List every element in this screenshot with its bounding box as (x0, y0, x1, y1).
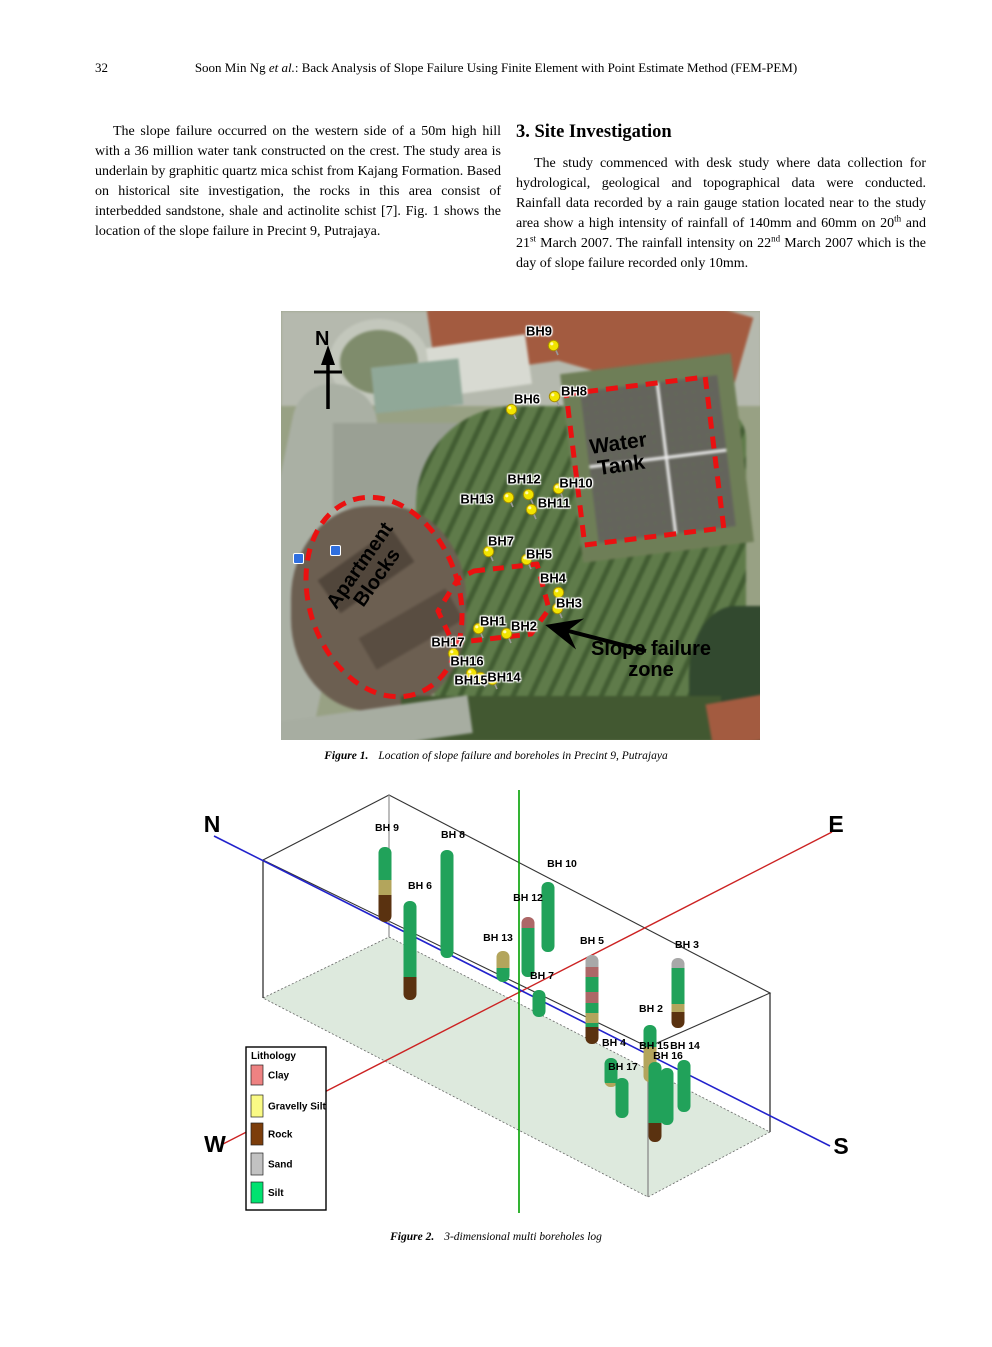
page-header: 32 Soon Min Ng et al.: Back Analysis of … (0, 60, 992, 76)
lithology-segment (404, 901, 417, 977)
lithology-segment (533, 990, 546, 1017)
borehole-label: BH 9 (375, 822, 399, 834)
figure2-caption-label: Figure 2. (390, 1231, 434, 1243)
lithology-segment (616, 1078, 629, 1118)
borehole-pin-icon (502, 491, 517, 513)
legend-label: Sand (268, 1160, 292, 1171)
legend-swatch (251, 1182, 263, 1203)
lithology-segment (672, 1012, 685, 1028)
legend-swatch (251, 1095, 263, 1117)
west-axis-label: W (204, 1131, 226, 1157)
borehole-column (649, 1062, 662, 1142)
borehole-label: BH 16 (653, 1050, 683, 1062)
borehole-label: BH 4 (602, 1037, 626, 1049)
borehole-label: BH 12 (513, 892, 543, 904)
lithology-segment (379, 880, 392, 895)
legend-swatch (251, 1123, 263, 1145)
borehole-pin-label: BH9 (526, 324, 552, 339)
borehole-pin-label: BH16 (450, 654, 483, 669)
borehole-column (404, 901, 417, 1000)
legend-label: Clay (268, 1071, 290, 1082)
borehole-pin-label: BH14 (487, 670, 520, 685)
borehole-pin-label: BH2 (511, 619, 537, 634)
lithology-segment (522, 917, 535, 928)
borehole-pin-label: BH6 (514, 392, 540, 407)
figure1-caption-label: Figure 1. (324, 750, 368, 762)
borehole-column (441, 850, 454, 958)
borehole-column (379, 847, 392, 922)
borehole-pin-label: BH8 (561, 384, 587, 399)
borehole-pin-label: BH3 (556, 596, 582, 611)
lithology-segment (586, 1013, 599, 1023)
borehole-pin-icon (547, 339, 562, 361)
north-axis-label: N (204, 811, 221, 837)
figure2-borehole-log: BH 9BH 8BH 6BH 10BH 12BH 13BH 7BH 5BH 3B… (190, 788, 890, 1220)
borehole-label: BH 6 (408, 880, 432, 892)
borehole-pin-label: BH5 (526, 547, 552, 562)
borehole-label: BH 13 (483, 932, 513, 944)
lithology-segment (661, 1068, 674, 1125)
etal: et al. (269, 60, 295, 75)
lithology-segment (497, 951, 510, 968)
borehole-column (533, 990, 546, 1017)
borehole-pin-label: BH10 (559, 476, 592, 491)
borehole-label: BH 2 (639, 1003, 663, 1015)
lithology-segment (441, 850, 454, 958)
lithology-segment (586, 1003, 599, 1013)
borehole-column (616, 1078, 629, 1118)
borehole-pin-label: BH11 (538, 496, 571, 511)
lithology-segment (586, 1027, 599, 1044)
lithology-segment (404, 977, 417, 1000)
site-paragraph: The study commenced with desk study wher… (516, 154, 926, 274)
borehole-column (661, 1068, 674, 1125)
section-heading: 3. Site Investigation (516, 122, 926, 142)
lithology-segment (379, 895, 392, 922)
borehole-label: BH 7 (530, 970, 554, 982)
lithology-segment (497, 968, 510, 982)
right-column: 3. Site Investigation The study commence… (516, 122, 926, 274)
lithology-segment (586, 967, 599, 977)
lithology-segment (672, 1004, 685, 1012)
lithology-segment (586, 955, 599, 967)
borehole-column (542, 882, 555, 952)
borehole-pin-label: BH7 (488, 534, 514, 549)
borehole-pin-label: BH4 (540, 571, 566, 586)
borehole-pin-label: BH15 (454, 673, 487, 688)
figure1-satellite-map: BH9BH8BH6BH12BH10BH13BH11BH7BH5BH4BH3BH1… (281, 311, 760, 740)
borehole-label: BH 5 (580, 935, 604, 947)
legend-swatch (251, 1153, 263, 1175)
borehole-pin-label: BH12 (507, 472, 540, 487)
borehole-label: BH 8 (441, 829, 465, 841)
borehole-pin-label: BH13 (460, 492, 493, 507)
lithology-segment (678, 1060, 691, 1112)
lithology-segment (586, 977, 599, 992)
borehole-column (522, 917, 535, 977)
north-label: N (315, 329, 329, 350)
legend-label: Silt (268, 1188, 284, 1199)
lithology-segment (379, 847, 392, 880)
borehole-column (497, 951, 510, 982)
borehole-label: BH 17 (608, 1061, 638, 1073)
figure2-caption: Figure 2.3-dimensional multi boreholes l… (0, 1231, 992, 1243)
page-number: 32 (95, 60, 108, 76)
borehole-column (678, 1060, 691, 1112)
water-tank-label: Water Tank (588, 429, 651, 481)
legend-swatch (251, 1065, 263, 1085)
box-floor (263, 937, 770, 1197)
left-column: The slope failure occurred on the wester… (95, 122, 501, 242)
lithology-segment (672, 968, 685, 1004)
lithology-segment (672, 958, 685, 968)
lithology-segment (649, 1123, 662, 1142)
intro-paragraph: The slope failure occurred on the wester… (95, 122, 501, 242)
legend-title: Lithology (251, 1051, 296, 1062)
borehole-label: BH 3 (675, 939, 699, 951)
slope-failure-zone-label: Slope failure zone (576, 639, 726, 681)
borehole-pin-label: BH17 (431, 635, 464, 650)
lithology-segment (649, 1062, 662, 1123)
borehole-column (672, 958, 685, 1028)
figure1-caption: Figure 1.Location of slope failure and b… (0, 750, 992, 762)
east-axis-label: E (828, 811, 843, 837)
lithology-segment (586, 1023, 599, 1027)
south-axis-label: S (833, 1133, 848, 1159)
borehole-column (586, 955, 599, 1044)
lithology-segment (542, 882, 555, 952)
running-title: Soon Min Ng et al.: Back Analysis of Slo… (0, 60, 992, 76)
legend-label: Rock (268, 1130, 293, 1141)
paper-page: 32 Soon Min Ng et al.: Back Analysis of … (0, 0, 992, 1347)
borehole-label: BH 10 (547, 858, 577, 870)
lithology-segment (586, 992, 599, 1003)
legend-label: Gravelly Silt (268, 1102, 326, 1113)
